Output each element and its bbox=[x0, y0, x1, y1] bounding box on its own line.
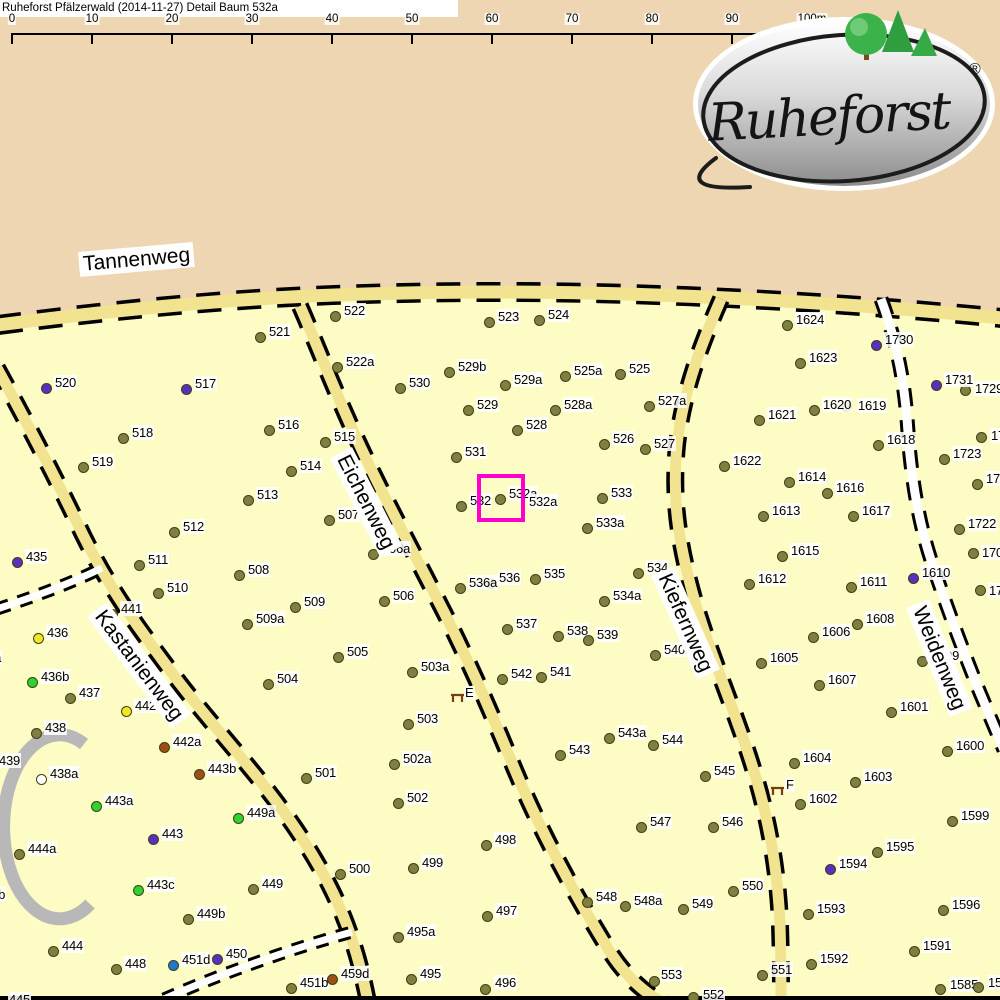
tree-marker-529b bbox=[444, 367, 455, 378]
ruheforst-logo: Ruheforst ® bbox=[688, 6, 1000, 191]
scale-label-30: 30 bbox=[245, 13, 260, 25]
tree-marker-495a bbox=[393, 932, 404, 943]
scale-label-0: 0 bbox=[8, 13, 16, 25]
tree-marker-516 bbox=[264, 425, 275, 436]
tree-label-516: 516 bbox=[277, 417, 300, 432]
tree-marker-514 bbox=[286, 466, 297, 477]
tree-marker-525 bbox=[615, 369, 626, 380]
tree-marker-17 bbox=[975, 585, 986, 596]
tree-marker-449a bbox=[233, 813, 244, 824]
tree-marker-444 bbox=[48, 946, 59, 957]
tree-marker-1623 bbox=[795, 358, 806, 369]
tree-label-513: 513 bbox=[256, 487, 279, 502]
tree-marker-1601 bbox=[886, 707, 897, 718]
tree-marker-1612 bbox=[744, 579, 755, 590]
tree-label-495: 495 bbox=[419, 966, 442, 981]
tree-marker-1605 bbox=[756, 658, 767, 669]
scale-tick-0 bbox=[11, 33, 13, 44]
tree-marker-505 bbox=[333, 652, 344, 663]
tree-label-1594: 1594 bbox=[838, 856, 868, 871]
scale-tick-30 bbox=[251, 33, 253, 44]
tree-marker-170 bbox=[968, 548, 979, 559]
scale-tick-40 bbox=[331, 33, 333, 44]
tree-marker-459d bbox=[327, 974, 338, 985]
tree-label-1618: 1618 bbox=[886, 432, 916, 447]
tree-marker-518 bbox=[118, 433, 129, 444]
tree-marker-503a bbox=[407, 667, 418, 678]
tree-marker-541 bbox=[536, 672, 547, 683]
tree-marker-502a bbox=[389, 759, 400, 770]
tree-label-498: 498 bbox=[494, 832, 517, 847]
scale-label-40: 40 bbox=[325, 13, 340, 25]
tree-marker-443a bbox=[91, 801, 102, 812]
tree-marker-495 bbox=[406, 974, 417, 985]
tree-marker-509a bbox=[242, 619, 253, 630]
tree-marker-534a bbox=[599, 596, 610, 607]
tree-label-496: 496 bbox=[494, 975, 517, 990]
tree-label-514: 514 bbox=[299, 458, 322, 473]
tree-label-533: 533 bbox=[610, 485, 633, 500]
bench-letter-E: E bbox=[464, 686, 475, 700]
tree-marker-451d bbox=[168, 960, 179, 971]
tree-marker-17 bbox=[976, 432, 987, 443]
tree-label-533a: 533a bbox=[595, 515, 625, 530]
scale-tick-60 bbox=[491, 33, 493, 44]
tree-marker-1621 bbox=[754, 415, 765, 426]
scale-tick-80 bbox=[651, 33, 653, 44]
tree-label-532a: 532a bbox=[528, 494, 558, 509]
tree-marker-499 bbox=[408, 863, 419, 874]
tree-label-443: 443 bbox=[161, 826, 184, 841]
tree-label-519: 519 bbox=[91, 454, 114, 469]
tree-marker-1585 bbox=[935, 984, 946, 995]
scale-label-10: 10 bbox=[85, 13, 100, 25]
tree-marker-524 bbox=[534, 315, 545, 326]
tree-marker-533a bbox=[582, 523, 593, 534]
tree-marker-552 bbox=[688, 992, 699, 1000]
tree-marker-536a bbox=[455, 583, 466, 594]
tree-label-436: 436 bbox=[46, 625, 69, 640]
tree-label-1599: 1599 bbox=[960, 808, 990, 823]
tree-label-1731: 1731 bbox=[944, 372, 974, 387]
tree-label-444: 444 bbox=[61, 938, 84, 953]
tree-label-543a: 543a bbox=[617, 725, 647, 740]
tree-label-448: 448 bbox=[124, 956, 147, 971]
tree-label-551: 551 bbox=[770, 962, 793, 977]
tree-marker-547 bbox=[636, 822, 647, 833]
tree-label-517: 517 bbox=[194, 376, 217, 391]
tree-marker-1615 bbox=[777, 551, 788, 562]
tree-label-1593: 1593 bbox=[816, 901, 846, 916]
tree-marker-1617 bbox=[848, 511, 859, 522]
tree-label-512: 512 bbox=[182, 519, 205, 534]
tree-marker-1616 bbox=[822, 488, 833, 499]
tree-label-439: 439 bbox=[0, 753, 21, 768]
scale-label-20: 20 bbox=[165, 13, 180, 25]
tree-marker-532 bbox=[456, 501, 467, 512]
tree-marker-522 bbox=[330, 311, 341, 322]
tree-marker-521 bbox=[255, 332, 266, 343]
tree-label-444a: 444a bbox=[27, 841, 57, 856]
tree-marker-172 bbox=[972, 479, 983, 490]
tree-label-526: 526 bbox=[612, 431, 635, 446]
scale-tick-10 bbox=[91, 33, 93, 44]
tree-label-528a: 528a bbox=[563, 397, 593, 412]
tree-marker-1622 bbox=[719, 461, 730, 472]
tree-marker-1596 bbox=[938, 905, 949, 916]
tree-label-1596: 1596 bbox=[951, 897, 981, 912]
tree-label-503a: 503a bbox=[420, 659, 450, 674]
tree-marker-506 bbox=[379, 596, 390, 607]
tree-marker-543 bbox=[555, 750, 566, 761]
tree-label-1722: 1722 bbox=[967, 516, 997, 531]
tree-label-1607: 1607 bbox=[827, 672, 857, 687]
tree-marker-1730 bbox=[871, 340, 882, 351]
tree-label-508: 508 bbox=[247, 562, 270, 577]
tree-label-503: 503 bbox=[416, 711, 439, 726]
tree-label-500: 500 bbox=[348, 861, 371, 876]
tree-marker-522a bbox=[332, 362, 343, 373]
tree-label-537: 537 bbox=[515, 616, 538, 631]
tree-label-502: 502 bbox=[406, 790, 429, 805]
tree-label-1591: 1591 bbox=[922, 938, 952, 953]
tree-label-509: 509 bbox=[303, 594, 326, 609]
tree-label-1620: 1620 bbox=[822, 397, 852, 412]
tree-marker-1591 bbox=[909, 946, 920, 957]
logo-wordmark: Ruheforst bbox=[705, 81, 953, 154]
tree-marker-444a bbox=[14, 849, 25, 860]
scale-tick-50 bbox=[411, 33, 413, 44]
tree-label-1613: 1613 bbox=[771, 503, 801, 518]
tree-marker-501 bbox=[301, 773, 312, 784]
tree-label-1595: 1595 bbox=[885, 839, 915, 854]
tree-label-17: 17 bbox=[990, 428, 1000, 443]
tree-label-501: 501 bbox=[314, 765, 337, 780]
tree-marker-553 bbox=[649, 976, 660, 987]
tree-label-499: 499 bbox=[421, 855, 444, 870]
tree-label-525a: 525a bbox=[573, 363, 603, 378]
tree-label-1601: 1601 bbox=[899, 699, 929, 714]
tree-label-549: 549 bbox=[691, 896, 714, 911]
tree-label-1622: 1622 bbox=[732, 453, 762, 468]
tree-marker-508 bbox=[234, 570, 245, 581]
tree-label-530: 530 bbox=[408, 375, 431, 390]
tree-label-1606: 1606 bbox=[821, 624, 851, 639]
tree-label-545: 545 bbox=[713, 763, 736, 778]
tree-marker-550 bbox=[728, 886, 739, 897]
tree-label-450: 450 bbox=[225, 946, 248, 961]
tree-marker-528 bbox=[512, 425, 523, 436]
tree-marker-1603 bbox=[850, 777, 861, 788]
tree-marker-1722 bbox=[954, 524, 965, 535]
tree-marker-551 bbox=[757, 970, 768, 981]
tree-label-511: 511 bbox=[147, 552, 169, 567]
tree-marker-1731 bbox=[931, 380, 942, 391]
tree-marker-515 bbox=[320, 437, 331, 448]
tree-label-449a: 449a bbox=[246, 805, 276, 820]
scale-label-50: 50 bbox=[405, 13, 420, 25]
tree-marker-1604 bbox=[789, 758, 800, 769]
tree-label-548a: 548a bbox=[633, 893, 663, 908]
tree-marker-1607 bbox=[814, 680, 825, 691]
tree-label-547: 547 bbox=[649, 814, 672, 829]
tree-label-1602: 1602 bbox=[808, 791, 838, 806]
tree-marker-1600 bbox=[942, 746, 953, 757]
tree-label-543: 543 bbox=[568, 742, 591, 757]
tree-marker-1613 bbox=[758, 511, 769, 522]
tree-label-442a: 442a bbox=[172, 734, 202, 749]
tree-marker-438 bbox=[31, 728, 42, 739]
tree-label-522a: 522a bbox=[345, 354, 375, 369]
tree-marker-503 bbox=[403, 719, 414, 730]
tree-label-528: 528 bbox=[525, 417, 548, 432]
tree-marker-1624 bbox=[782, 320, 793, 331]
tree-label-1614: 1614 bbox=[797, 469, 827, 484]
tree-label-529a: 529a bbox=[513, 372, 543, 387]
tree-label-550: 550 bbox=[741, 878, 764, 893]
tree-marker-548 bbox=[582, 897, 593, 908]
tree-marker-528a bbox=[550, 405, 561, 416]
tree-label-1604: 1604 bbox=[802, 750, 832, 765]
tree-marker-1592 bbox=[806, 959, 817, 970]
tree-label-438: 438 bbox=[44, 720, 67, 735]
tree-marker-1723 bbox=[939, 454, 950, 465]
tree-label-522: 522 bbox=[343, 303, 366, 318]
tree-label-451d: 451d bbox=[181, 952, 211, 967]
bench-icon-F bbox=[770, 785, 786, 797]
tree-label-1617: 1617 bbox=[861, 503, 891, 518]
tree-marker-15 bbox=[973, 982, 984, 993]
tree-label-544: 544 bbox=[661, 732, 684, 747]
scale-label-80: 80 bbox=[645, 13, 660, 25]
tree-label-436b: 436b bbox=[40, 669, 70, 684]
tree-label-509a: 509a bbox=[255, 611, 285, 626]
tree-label-518: 518 bbox=[131, 425, 154, 440]
scale-label-70: 70 bbox=[565, 13, 580, 25]
bench-letter-F: F bbox=[785, 778, 795, 792]
tree-marker-530 bbox=[395, 383, 406, 394]
tree-label-539: 539 bbox=[596, 627, 619, 642]
tree-marker-526 bbox=[599, 439, 610, 450]
tree-marker-442a bbox=[159, 742, 170, 753]
tree-marker-1618 bbox=[873, 440, 884, 451]
tree-label-542: 542 bbox=[510, 666, 533, 681]
tree-marker-529a bbox=[500, 380, 511, 391]
tree-marker-509 bbox=[290, 602, 301, 613]
tree-marker-436 bbox=[33, 633, 44, 644]
tree-label-502a: 502a bbox=[402, 751, 432, 766]
tree-label-17: 17 bbox=[988, 583, 1000, 598]
tree-label-1621: 1621 bbox=[767, 407, 797, 422]
tree-label-506: 506 bbox=[392, 588, 415, 603]
tree-label-529: 529 bbox=[476, 397, 499, 412]
tree-marker-1606 bbox=[808, 632, 819, 643]
tree-label-1611: 1611 bbox=[859, 574, 888, 589]
tree-marker-519 bbox=[78, 462, 89, 473]
tree-label-444b: 444b bbox=[0, 887, 6, 902]
tree-label-1610: 1610 bbox=[921, 565, 951, 580]
tree-marker-451b bbox=[286, 983, 297, 994]
tree-marker-527 bbox=[640, 444, 651, 455]
tree-label-1603: 1603 bbox=[863, 769, 893, 784]
tree-marker-529 bbox=[463, 405, 474, 416]
scale-tick-70 bbox=[571, 33, 573, 44]
tree-marker-535 bbox=[530, 574, 541, 585]
tree-marker-435 bbox=[12, 557, 23, 568]
tree-label-548: 548 bbox=[595, 889, 618, 904]
tree-marker-1594 bbox=[825, 864, 836, 875]
tree-marker-438a bbox=[36, 774, 47, 785]
tree-marker-443c bbox=[133, 885, 144, 896]
tree-marker-437 bbox=[65, 693, 76, 704]
tree-label-1592: 1592 bbox=[819, 951, 849, 966]
logo-registered-mark: ® bbox=[969, 61, 981, 78]
tree-marker-512 bbox=[169, 527, 180, 538]
tree-label-515: 515 bbox=[333, 429, 356, 444]
tree-marker-523 bbox=[484, 317, 495, 328]
tree-marker-545 bbox=[700, 771, 711, 782]
tree-marker-548a bbox=[620, 901, 631, 912]
tree-marker-442 bbox=[121, 706, 132, 717]
tree-label-1615: 1615 bbox=[790, 543, 820, 558]
tree-marker-510 bbox=[153, 588, 164, 599]
tree-marker-517 bbox=[181, 384, 192, 395]
tree-label-520: 520 bbox=[54, 375, 77, 390]
highlight-square-532a bbox=[477, 474, 525, 522]
tree-marker-504 bbox=[263, 679, 274, 690]
tree-label-437: 437 bbox=[78, 685, 101, 700]
tree-label-531: 531 bbox=[464, 444, 487, 459]
tree-marker-496 bbox=[480, 984, 491, 995]
tree-marker-500 bbox=[335, 869, 346, 880]
tree-marker-450 bbox=[212, 954, 223, 965]
tree-marker-1614 bbox=[784, 477, 795, 488]
tree-label-505: 505 bbox=[346, 644, 369, 659]
tree-label-552: 552 bbox=[702, 987, 725, 1000]
tree-marker-1599 bbox=[947, 816, 958, 827]
tree-label-449: 449 bbox=[261, 876, 284, 891]
tree-marker-549 bbox=[678, 904, 689, 915]
scale-tick-20 bbox=[171, 33, 173, 44]
tree-marker-525a bbox=[560, 371, 571, 382]
tree-label-536: 536 bbox=[498, 570, 521, 585]
tree-marker-443 bbox=[148, 834, 159, 845]
tree-marker-546 bbox=[708, 822, 719, 833]
tree-label-497: 497 bbox=[495, 903, 518, 918]
tree-label-527a: 527a bbox=[657, 393, 687, 408]
tree-marker-436b bbox=[27, 677, 38, 688]
tree-label-438a: 438a bbox=[49, 766, 79, 781]
tree-label-170: 170 bbox=[981, 545, 1000, 560]
map-bottom-border bbox=[0, 996, 1000, 1000]
tree-marker-1602 bbox=[795, 799, 806, 810]
tree-marker-507 bbox=[324, 515, 335, 526]
tree-marker-537 bbox=[502, 624, 513, 635]
tree-marker-1593 bbox=[803, 909, 814, 920]
tree-marker-502 bbox=[393, 798, 404, 809]
tree-label-523: 523 bbox=[497, 309, 520, 324]
map-title: Ruheforst Pfälzerwald (2014-11-27) Detai… bbox=[2, 2, 278, 14]
tree-label-443b: 443b bbox=[207, 761, 237, 776]
tree-marker-543a bbox=[604, 733, 615, 744]
tree-label-524: 524 bbox=[547, 307, 570, 322]
tree-label-534a: 534a bbox=[612, 588, 642, 603]
tree-label-459d: 459d bbox=[340, 966, 370, 981]
tree-label-510: 510 bbox=[166, 580, 189, 595]
tree-marker-527a bbox=[644, 401, 655, 412]
tree-label-527: 527 bbox=[653, 436, 676, 451]
tree-label-1616: 1616 bbox=[835, 480, 865, 495]
tree-marker-443b bbox=[194, 769, 205, 780]
tree-label-445: 445 bbox=[8, 992, 31, 1000]
tree-label-1723: 1723 bbox=[952, 446, 982, 461]
tree-label-504: 504 bbox=[276, 671, 299, 686]
tree-label-1612: 1612 bbox=[757, 571, 787, 586]
tree-label-441: 441 bbox=[120, 601, 143, 616]
tree-label-529b: 529b bbox=[457, 359, 487, 374]
tree-label-495a: 495a bbox=[406, 924, 436, 939]
tree-marker-1610 bbox=[908, 573, 919, 584]
tree-label-536a: 536a bbox=[468, 575, 498, 590]
tree-label-535: 535 bbox=[543, 566, 566, 581]
tree-label-1623: 1623 bbox=[808, 350, 838, 365]
tree-label-521: 521 bbox=[268, 324, 291, 339]
tree-label-1624: 1624 bbox=[795, 312, 825, 327]
tree-label-1608: 1608 bbox=[865, 611, 895, 626]
tree-marker-544 bbox=[648, 740, 659, 751]
tree-marker-538 bbox=[553, 631, 564, 642]
tree-label-436a: 436a bbox=[0, 650, 2, 665]
tree-marker-1620 bbox=[809, 405, 820, 416]
tree-label-1730: 1730 bbox=[884, 332, 914, 347]
tree-label-15: 15 bbox=[987, 975, 1000, 990]
tree-marker-534 bbox=[633, 568, 644, 579]
tree-label-1619: 1619 bbox=[857, 398, 887, 413]
tree-marker-1595 bbox=[872, 847, 883, 858]
tree-label-443a: 443a bbox=[104, 793, 134, 808]
tree-marker-1608 bbox=[852, 619, 863, 630]
tree-label-1729: 1729 bbox=[974, 381, 1000, 396]
tree-label-451b: 451b bbox=[299, 975, 329, 990]
tree-marker-1611 bbox=[846, 582, 857, 593]
tree-marker-448 bbox=[111, 964, 122, 975]
tree-label-172: 172 bbox=[985, 471, 1000, 486]
tree-marker-542 bbox=[497, 674, 508, 685]
tree-label-443c: 443c bbox=[146, 877, 175, 892]
tree-marker-533 bbox=[597, 493, 608, 504]
tree-label-449b: 449b bbox=[196, 906, 226, 921]
tree-label-435: 435 bbox=[25, 549, 48, 564]
tree-label-541: 541 bbox=[549, 664, 572, 679]
tree-label-546: 546 bbox=[721, 814, 744, 829]
tree-marker-520 bbox=[41, 383, 52, 394]
tree-marker-511 bbox=[134, 560, 145, 571]
map-viewport: 435436436a436b437438438a439441442442a443… bbox=[0, 0, 1000, 1000]
tree-label-1600: 1600 bbox=[955, 738, 985, 753]
tree-marker-540 bbox=[650, 650, 661, 661]
tree-marker-498 bbox=[481, 840, 492, 851]
tree-label-525: 525 bbox=[628, 361, 651, 376]
tree-label-553: 553 bbox=[660, 967, 683, 982]
tree-marker-449b bbox=[183, 914, 194, 925]
tree-marker-513 bbox=[243, 495, 254, 506]
tree-marker-539 bbox=[583, 635, 594, 646]
scale-label-60: 60 bbox=[485, 13, 500, 25]
tree-label-1605: 1605 bbox=[769, 650, 799, 665]
tree-marker-531 bbox=[451, 452, 462, 463]
tree-marker-497 bbox=[482, 911, 493, 922]
tree-marker-449 bbox=[248, 884, 259, 895]
